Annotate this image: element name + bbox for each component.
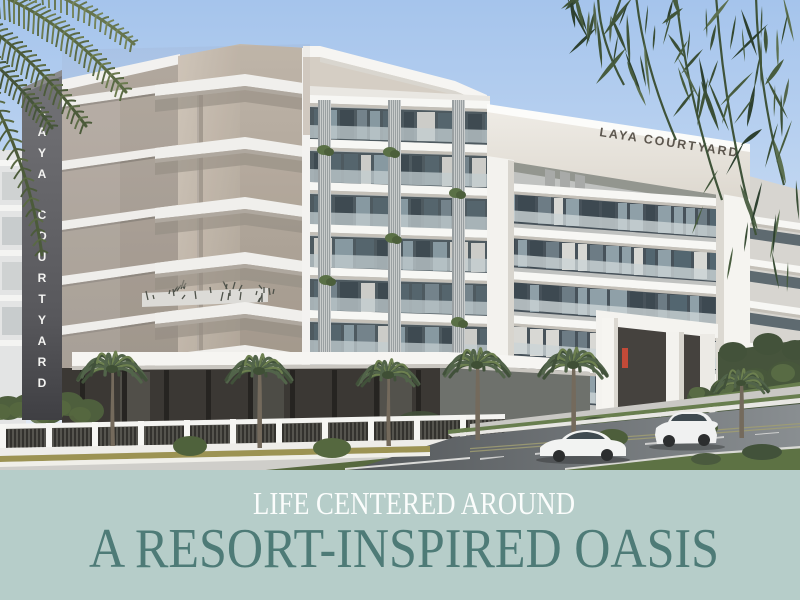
svg-text:T: T — [38, 292, 46, 306]
svg-text:R: R — [38, 271, 47, 285]
svg-text:A: A — [38, 334, 47, 348]
svg-text:D: D — [38, 376, 47, 390]
svg-text:LIFE CENTERED AROUND: LIFE CENTERED AROUND — [253, 486, 575, 521]
svg-text:A RESORT-INSPIRED OASIS: A RESORT-INSPIRED OASIS — [89, 518, 719, 580]
svg-text:A: A — [38, 167, 47, 181]
svg-text:Y: Y — [38, 146, 46, 160]
svg-text:R: R — [38, 355, 47, 369]
svg-text:Y: Y — [38, 313, 46, 327]
